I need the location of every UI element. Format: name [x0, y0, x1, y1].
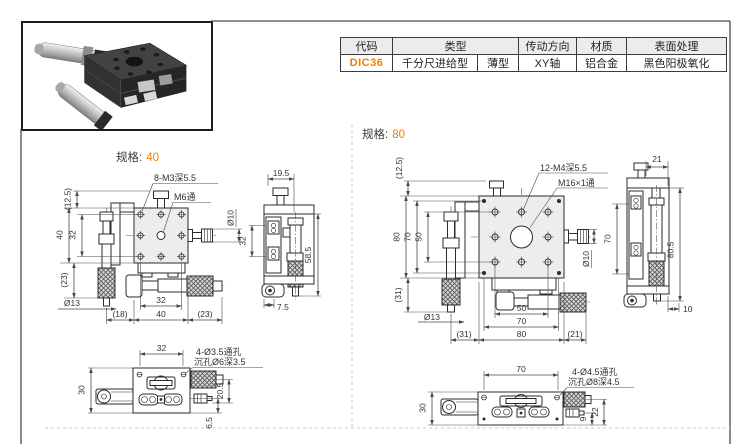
spec40-bottom-dim-right: 20.5: [215, 382, 225, 399]
spec80-side-dim-top: 21: [652, 154, 662, 164]
spec40-side-dim-top: 19.5: [273, 168, 290, 178]
spec80-dim-mic-below: (31): [393, 287, 403, 302]
spec80-side-dim-left: 70: [603, 234, 613, 244]
spec80-dim-stage-offset: (12.5): [394, 157, 404, 179]
spec80-callout-center-hole: M16×1通: [558, 178, 595, 188]
spec80-side-dim-height: 80.5: [666, 241, 676, 258]
spec40-bottom-callout-holes: 4-Ø3.5通孔: [196, 347, 242, 357]
spec80-dim-left-offset: (31): [456, 329, 471, 339]
spec40-callout-holes: 8-M3深5.5: [154, 173, 196, 183]
spec80-bottom-callout-cbore: 沉孔Ø8深4.5: [568, 377, 620, 387]
spec40-dim-mic-dia: Ø13: [64, 298, 80, 308]
spec40-dim-left-offset: (18): [112, 309, 127, 319]
spec40-top-view: [98, 191, 226, 310]
spec80-dim-mic-dia: Ø13: [424, 312, 440, 322]
spec80-dim-knob-dia: Ø10: [581, 251, 591, 267]
spec40-side-dim-height: 58.5: [303, 246, 313, 263]
catalog-page: 代码 类型 传动方向 材质 表面处理 DIC36 千分尺进给型 薄型 XY轴 铝…: [0, 0, 750, 444]
spec40-dim-stage-offset: (12.5): [63, 188, 73, 210]
spec80-dim-hole-pitch-h: 50: [517, 303, 527, 313]
spec40-bottom-dim-height: 30: [77, 385, 87, 395]
spec80-dim-corner-pitch: 70: [517, 316, 527, 326]
spec80-dim-hole-pitch-v: 50: [414, 232, 424, 242]
spec40-dim-mic-below: (23): [59, 272, 69, 287]
spec40-dim-width: 40: [156, 309, 166, 319]
spec80-callout-holes: 12-M4深5.5: [540, 163, 587, 173]
spec80-bottom-dim-height: 30: [418, 403, 428, 413]
spec40-dim-knob-dia: Ø10: [226, 210, 236, 226]
spec80-bottom-callout-holes: 4-Ø4.5通孔: [572, 367, 618, 377]
spec40-dim-hole-pitch-h: 32: [156, 295, 166, 305]
spec80-dim-right-offset: (21): [567, 329, 582, 339]
spec80-bottom-view: [441, 392, 591, 425]
spec80-bottom-dim-right: 22: [590, 407, 600, 417]
spec80-bottom-dim-width: 70: [516, 364, 526, 374]
spec40-side-view: [262, 188, 314, 300]
spec40-bottom-callout-cbore: 沉孔Ø6深3.5: [194, 357, 246, 367]
spec40-dim-height: 40: [55, 230, 65, 240]
spec40-callout-center-hole: M6通: [174, 192, 196, 202]
spec80-dim-width: 80: [517, 329, 527, 339]
spec40-dim-right-offset: (23): [197, 309, 212, 319]
spec40-dim-hole-pitch-v: 32: [68, 230, 78, 240]
spec80-side-view: [624, 163, 669, 307]
spec40-bottom-view: [96, 368, 223, 413]
spec40-bottom-dim-offset: 6.5: [204, 417, 214, 429]
spec80-dim-height: 80: [392, 232, 402, 242]
spec40-bottom-dim-width: 32: [157, 343, 167, 353]
spec80-dim-bracket: 70: [403, 232, 413, 242]
spec40-side-dim-left: 32: [238, 236, 248, 246]
spec80-bottom-dim-screw: 9: [578, 416, 588, 421]
spec40-side-dim-bottom: 7.5: [277, 302, 289, 312]
spec80-side-dim-bottom: 10: [683, 304, 693, 314]
page-frame: [21, 21, 730, 444]
